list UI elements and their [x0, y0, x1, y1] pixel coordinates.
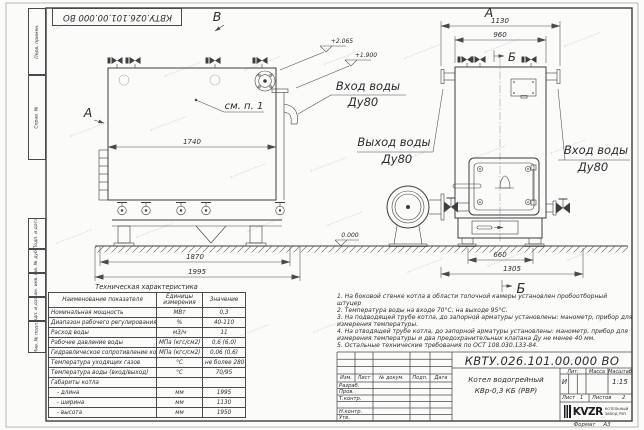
- notes-list: 1. На боковой стенке котла в области топ…: [337, 294, 633, 351]
- peephole: [500, 176, 510, 188]
- note-item: 3. На подводящей трубе котла, до запорно…: [337, 315, 633, 329]
- table-row: - длинамм1995: [49, 388, 246, 398]
- kvzr-logo-text: KVZR: [573, 406, 603, 418]
- product-name-line2: КВр-0,3 КБ (РВР): [452, 386, 560, 395]
- inlet-stub: [546, 70, 560, 84]
- tb-sheet-value: 1: [580, 395, 583, 401]
- tb-tkontr: Т.контр.: [339, 396, 361, 402]
- svg-text:см. п. 1: см. п. 1: [225, 101, 264, 112]
- elevation-0000: 0.000: [341, 232, 358, 239]
- drawing-sheet: 1740 1870 1995 В А см. п. 1: [0, 0, 644, 430]
- svg-text:Вход воды: Вход воды: [564, 143, 628, 157]
- tb-nkontr: Н.контр.: [339, 409, 362, 415]
- note-item: 4. На отводящей трубе котла, до запорной…: [337, 329, 633, 343]
- dim-960: 960: [493, 31, 507, 39]
- tb-sheets-label: Листов: [592, 395, 611, 401]
- drain-valve-icon: [141, 203, 151, 215]
- svg-text:Вход воды: Вход воды: [336, 79, 400, 93]
- note-item: 1. На боковой стенке котла в области топ…: [337, 294, 633, 308]
- dim-1740: 1740: [183, 138, 201, 146]
- callout-see-item: см. п. 1: [195, 99, 264, 112]
- blower-fan: [387, 186, 469, 247]
- doc-number: КВТУ.026.101.00.000 ВО: [453, 354, 631, 368]
- dim-1870: 1870: [186, 253, 204, 261]
- support-frame: [112, 220, 282, 246]
- safety-valve-icon: [108, 57, 123, 68]
- safety-valve-icon: [458, 56, 473, 67]
- margin-cell-perv-primen: Перв. примен.: [28, 8, 46, 75]
- dim-1305: 1305: [503, 265, 521, 273]
- dimensions-front: А 1130 960 660 1305: [441, 5, 583, 278]
- inlet-pipe: [272, 89, 297, 200]
- elevation-2065: +2.065: [331, 38, 353, 45]
- tb-mass-header: Масса: [586, 369, 608, 375]
- table-row: Номинальная мощностьМВт0,3: [49, 308, 246, 318]
- safety-valve-icon: [206, 57, 221, 68]
- tb-col-list: Лист: [355, 375, 373, 381]
- top-stamp: КВТУ.026.101.00.000 ВО: [52, 8, 182, 26]
- safety-valve-icon: [522, 56, 537, 67]
- callout-inlet-right: Вход воды Ду80: [558, 89, 630, 174]
- margin-cell-inv-dubl: Инв. № дубл.: [28, 249, 46, 273]
- svg-text:Выход воды: Выход воды: [357, 135, 430, 149]
- note-item: 5. Остальные технические требования по О…: [337, 343, 633, 350]
- drain-valve-icon: [176, 203, 186, 215]
- drain-valve-icon: [201, 203, 211, 215]
- dim-660: 660: [493, 251, 507, 259]
- drain-valve-icon: [117, 203, 127, 215]
- tech-table-header-row: Наименование показателя Единицы измерени…: [49, 293, 246, 308]
- tech-table: Наименование показателя Единицы измерени…: [48, 292, 246, 418]
- table-row: Расход водым3/ч11: [49, 328, 246, 338]
- top-stamp-number: КВТУ.026.101.00.000 ВО: [63, 12, 172, 22]
- table-row: Рабочее давление водыМПа (кгс/см2)0,6 (6…: [49, 338, 246, 348]
- table-row: Габариты котла: [49, 378, 246, 388]
- svg-text:Ду80: Ду80: [577, 160, 608, 174]
- dim-1130: 1130: [491, 17, 509, 25]
- kvzr-logo: KVZR КОТЕЛЬНЫЙ ЗАВОД РЭП: [561, 403, 631, 420]
- product-name-line1: Котел водогрейный: [452, 375, 560, 384]
- tb-lit-header: Лит.: [560, 369, 586, 375]
- margin-cell-vzam-inv: Взам. инв. №: [28, 273, 46, 297]
- margin-cell-podp-data-1: Подп. и дата: [28, 218, 46, 249]
- sight-flange: [255, 71, 275, 91]
- svg-text:Ду80: Ду80: [381, 152, 412, 166]
- tb-sheets-value: 2: [622, 395, 625, 401]
- tb-utv: Утв.: [339, 415, 350, 421]
- tb-col-podp: Подп.: [410, 375, 430, 381]
- tb-razrab: Разраб.: [339, 383, 359, 389]
- margin-cell-inv-podl: Инв. № подл.: [28, 321, 46, 353]
- callout-inlet-left: Вход воды Ду80: [298, 79, 406, 114]
- margin-cell-podp-data-2: Подп. и дата: [28, 297, 46, 321]
- tb-scale-header: Масштаб: [608, 369, 632, 375]
- safety-valve-icon: [253, 57, 268, 68]
- svg-text:Б: Б: [508, 50, 516, 64]
- safety-valve-icon: [126, 57, 141, 68]
- view-label-B: В: [213, 9, 222, 24]
- dim-1995: 1995: [188, 268, 206, 276]
- format-note: ФорматА3: [548, 422, 636, 428]
- view-label-A-side: А: [83, 105, 93, 120]
- section-mark-top: Б: [494, 50, 516, 64]
- gate-valve-icon: [444, 198, 458, 213]
- kvzr-logo-subtitle: КОТЕЛЬНЫЙ ЗАВОД РЭП: [605, 407, 629, 415]
- boiler-front-view: Б: [357, 5, 630, 297]
- drain-valve-icon: [275, 203, 285, 215]
- door-handle: [453, 184, 481, 188]
- tb-col-dokum: № докум.: [373, 375, 410, 381]
- table-row: - ширинамм1130: [49, 398, 246, 408]
- tb-prov: Пров.: [339, 389, 354, 395]
- tb-col-izm: Изм.: [337, 375, 355, 381]
- ladder: [99, 150, 108, 200]
- table-row: - высотамм1950: [49, 408, 246, 418]
- kvzr-logo-icon: [564, 405, 571, 418]
- tb-lit-value: И: [560, 378, 569, 386]
- tb-col-data: Дата: [430, 375, 452, 381]
- table-row: Гидравлическое сопротивление котлаМПа (к…: [49, 348, 246, 358]
- ground-line: [95, 246, 628, 253]
- tb-scale-value: 1:15: [608, 378, 632, 386]
- tech-table-title: Техническая характеристика: [48, 283, 245, 291]
- tb-sheet-label: Лист: [562, 395, 575, 401]
- right-drain-valve: [546, 201, 556, 215]
- safety-valve-icon: [471, 56, 486, 67]
- outlet-stub: [441, 70, 455, 84]
- dimensions-side: 1740 1870 1995: [95, 138, 300, 281]
- table-row: Диапазон рабочего регулирования%40-110: [49, 318, 246, 328]
- svg-text:Ду80: Ду80: [347, 95, 378, 109]
- table-row: Температура воды (вход/выход)°С70/95: [49, 368, 246, 378]
- control-box: [511, 79, 536, 98]
- gate-valve-icon: [556, 199, 570, 214]
- margin-cell-sprav-no: Справ. №: [28, 75, 46, 160]
- table-row: Температура уходящих газов°Сне более 280: [49, 358, 246, 368]
- furnace-door: [453, 158, 539, 215]
- elevation-1900: +1.900: [355, 52, 377, 59]
